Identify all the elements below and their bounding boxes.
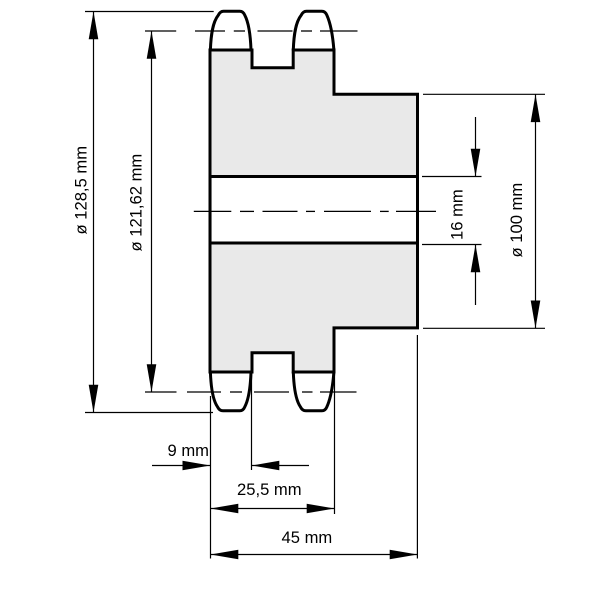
- svg-text:ø 121,62 mm: ø 121,62 mm: [127, 154, 146, 252]
- svg-text:25,5 mm: 25,5 mm: [237, 480, 302, 499]
- svg-text:45 mm: 45 mm: [282, 528, 333, 547]
- svg-text:ø 128,5 mm: ø 128,5 mm: [72, 146, 91, 235]
- svg-text:9 mm: 9 mm: [168, 441, 209, 460]
- svg-text:ø 100 mm: ø 100 mm: [507, 183, 526, 258]
- svg-text:16 mm: 16 mm: [447, 189, 466, 240]
